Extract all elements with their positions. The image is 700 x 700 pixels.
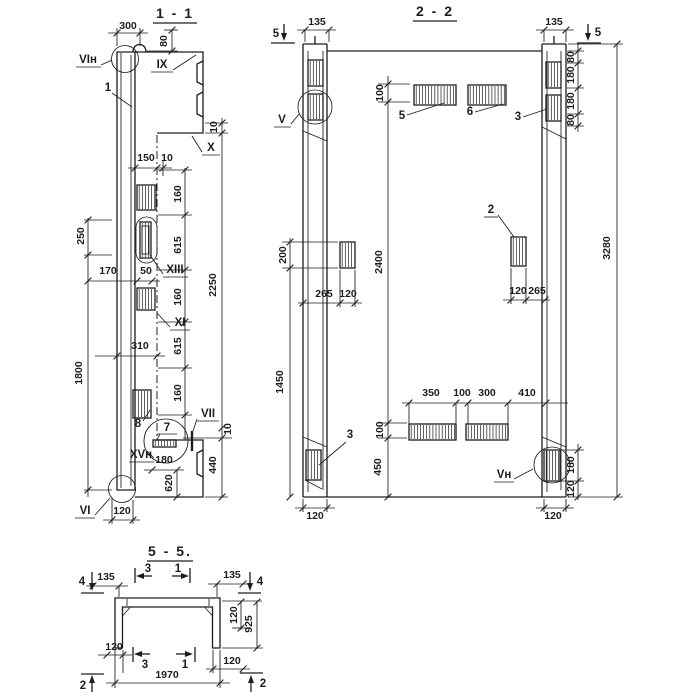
dim-80: 80: [147, 30, 178, 51]
hatch-lines: [548, 63, 557, 87]
section-marker-2-left: 2: [80, 674, 104, 692]
item-label: 8: [135, 418, 142, 430]
label-item-2: 2: [484, 204, 514, 237]
hatch-lines: [513, 238, 522, 265]
dim-text: 135: [308, 16, 326, 28]
item-label: 3: [347, 429, 353, 441]
technical-drawing: 1 - 1: [0, 0, 700, 700]
label-item-8: 8: [135, 410, 150, 430]
dim-310: 310: [95, 340, 165, 356]
dim-text: 180: [565, 92, 577, 110]
anchor-oval: [136, 217, 157, 263]
detail-label: X: [207, 142, 215, 154]
label-item-5: 5: [399, 103, 444, 122]
dim-text: 50: [140, 265, 152, 277]
detail-label: Vн: [497, 469, 512, 481]
label-ix: IX: [151, 55, 196, 72]
marker-label: 2: [260, 678, 266, 690]
item-label: 7: [164, 422, 170, 434]
marker-label: 3: [142, 659, 148, 671]
hatch-lines: [546, 451, 558, 480]
item-label: 2: [488, 204, 494, 216]
section-marker-3-bottom: 3: [133, 647, 150, 671]
dim-text: 200: [277, 246, 289, 264]
label-item-6: 6: [467, 104, 503, 118]
hatch-lines: [470, 86, 504, 104]
section-marker-4-right: 4: [238, 572, 264, 593]
dim-text: 1800: [73, 361, 85, 385]
embed-plate: [137, 288, 155, 310]
marker-label: 3: [145, 563, 151, 575]
dim-text: 150: [137, 152, 155, 164]
section-5-5: 5 - 5. 3 1 3 1 4: [79, 543, 266, 692]
flange-outline-top: [135, 52, 203, 133]
dim-text: 250: [75, 227, 87, 245]
label-v-bottom: Vн: [494, 469, 533, 482]
dim-text: 440: [207, 456, 219, 474]
item-label: 5: [399, 110, 406, 122]
dim-text: 10: [161, 152, 173, 164]
detail-label: VII: [201, 408, 215, 420]
dim-120-265-right: 120 265: [503, 268, 550, 304]
dim-text: 100: [453, 387, 471, 399]
marker-label: 4: [79, 576, 86, 588]
hatch-lines: [342, 243, 351, 267]
embed-plate: [409, 424, 456, 440]
label-v: V: [274, 114, 299, 127]
keyway-notch: [197, 92, 203, 117]
dim-170-50: 170 50: [88, 265, 160, 281]
marker-label: 2: [80, 680, 86, 692]
dim-text: 120: [113, 505, 131, 517]
dim-text: 925: [243, 615, 255, 633]
section-5-5-title: 5 - 5.: [148, 543, 192, 559]
dim-text: 180: [155, 454, 173, 466]
section-marker-1-bottom: 1: [176, 647, 195, 671]
dim-text: 620: [163, 474, 175, 492]
dim-text: 135: [223, 569, 241, 581]
hatch-lines: [139, 186, 155, 209]
dim-text: 615: [172, 236, 184, 254]
detail-circle-vi-bottom: [109, 476, 136, 503]
keyway-notch: [197, 450, 203, 477]
section-marker-2-right: 2: [240, 673, 266, 692]
dim-300: 300: [108, 20, 148, 46]
label-item-3-bottom: 3: [319, 429, 353, 465]
dim-120-flange: 120: [222, 601, 262, 630]
detail-label: XIII: [166, 264, 183, 276]
item-label: 6: [467, 106, 473, 118]
marker-label: 4: [257, 576, 264, 588]
dim-text: 100: [374, 421, 386, 439]
label-x: X: [192, 136, 220, 155]
hatch-lines: [310, 61, 319, 85]
dim-chain-top-right: 80 180 180 80: [565, 44, 584, 132]
dim-text: 10: [208, 121, 220, 133]
dim-text: 135: [545, 16, 563, 28]
dim-text: 180: [565, 66, 577, 84]
dim-text: 120: [228, 606, 240, 624]
item-label: 3: [515, 111, 521, 123]
dim-text: 310: [131, 340, 149, 352]
hatch-lines: [468, 425, 505, 439]
label-item-1: 1: [105, 82, 132, 107]
channel-outline: [115, 598, 220, 648]
marker-label: 1: [182, 659, 189, 671]
hatch-lines: [139, 289, 151, 309]
label-vii: VII: [193, 408, 219, 431]
dim-text: 120: [544, 510, 562, 522]
hatch-lines: [411, 425, 454, 439]
drawing-sheet: 1 - 1: [0, 0, 700, 700]
dim-text: 2250: [207, 273, 219, 297]
dim-text: 135: [97, 571, 115, 583]
detail-label: V: [278, 114, 286, 126]
dim-chain-left: 250 1800: [73, 218, 112, 497]
lifting-loop: [133, 45, 146, 53]
dim-text: 100: [374, 84, 386, 102]
dim-text: 120: [105, 641, 123, 653]
dim-text: 120: [339, 288, 357, 300]
hatch-lines: [142, 223, 148, 257]
hatch-lines: [416, 86, 453, 104]
dim-text: 180: [565, 456, 577, 474]
section-1-1-title: 1 - 1: [156, 5, 194, 21]
hatch-lines: [155, 441, 174, 446]
embed-plate: [137, 185, 156, 210]
dim-text: 160: [172, 288, 184, 306]
label-item-7: 7: [156, 422, 177, 441]
dim-text: 80: [158, 35, 170, 47]
detail-label: XVн: [130, 449, 152, 461]
dim-text: 265: [528, 285, 546, 297]
dim-text: 170: [99, 265, 117, 277]
item-label: 1: [105, 82, 112, 94]
dim-text: 3280: [601, 236, 613, 260]
dim-text: 450: [372, 458, 384, 476]
section-2-2: 2 - 2: [271, 3, 623, 522]
keyway-notch: [197, 61, 203, 85]
detail-label: VIн: [79, 54, 97, 66]
label-vi-top: VIн: [76, 54, 112, 67]
section-marker-3-top: 3: [135, 563, 152, 583]
embed-plate: [468, 85, 506, 105]
hatch-lines: [310, 95, 319, 119]
marker-label: 5: [273, 28, 280, 40]
hatch-lines: [548, 96, 557, 120]
label-vi-bottom: VI: [75, 498, 110, 518]
dim-text: 80: [565, 114, 577, 126]
dim-chain-right-inner: 160 615 160 615 160: [158, 168, 192, 440]
dim-text: 1970: [155, 669, 179, 681]
detail-label: IX: [157, 59, 168, 71]
dim-text: 2400: [373, 250, 385, 274]
dim-text: 410: [518, 387, 536, 399]
dim-text: 350: [422, 387, 440, 399]
dim-text: 615: [172, 337, 184, 355]
marker-label: 1: [175, 563, 182, 575]
dim-120-bottom: 120: [103, 498, 140, 524]
dim-text: 1450: [274, 370, 286, 394]
dim-3280: 3280: [568, 44, 623, 497]
marker-label: 5: [595, 27, 602, 39]
dim-chain-middle: 100 2400 100 450: [372, 76, 410, 497]
dim-text: 265: [315, 288, 333, 300]
hatch-lines: [308, 451, 317, 479]
section-1-1: 1 - 1: [73, 5, 234, 524]
dim-text: 160: [172, 384, 184, 402]
dim-135-right: 135: [536, 16, 574, 42]
dim-text: 120: [509, 285, 527, 297]
section-2-2-title: 2 - 2: [416, 3, 454, 19]
dim-text: 160: [172, 185, 184, 203]
dim-text: 120: [223, 655, 241, 667]
dim-text: 80: [565, 51, 577, 63]
section-marker-1-top: 1: [172, 563, 190, 583]
label-xv: XVн: [129, 449, 154, 462]
dim-text: 300: [478, 387, 496, 399]
dim-text: 10: [222, 423, 234, 435]
hatch-lines: [135, 391, 147, 417]
dim-text: 300: [119, 20, 137, 32]
detail-label: VI: [80, 505, 91, 517]
section-marker-5-left: 5: [271, 24, 295, 43]
section-marker-5-right: 5: [577, 24, 602, 43]
embed-plate: [133, 390, 151, 418]
dim-text: 120: [306, 510, 324, 522]
dim-text: 120: [565, 480, 577, 498]
